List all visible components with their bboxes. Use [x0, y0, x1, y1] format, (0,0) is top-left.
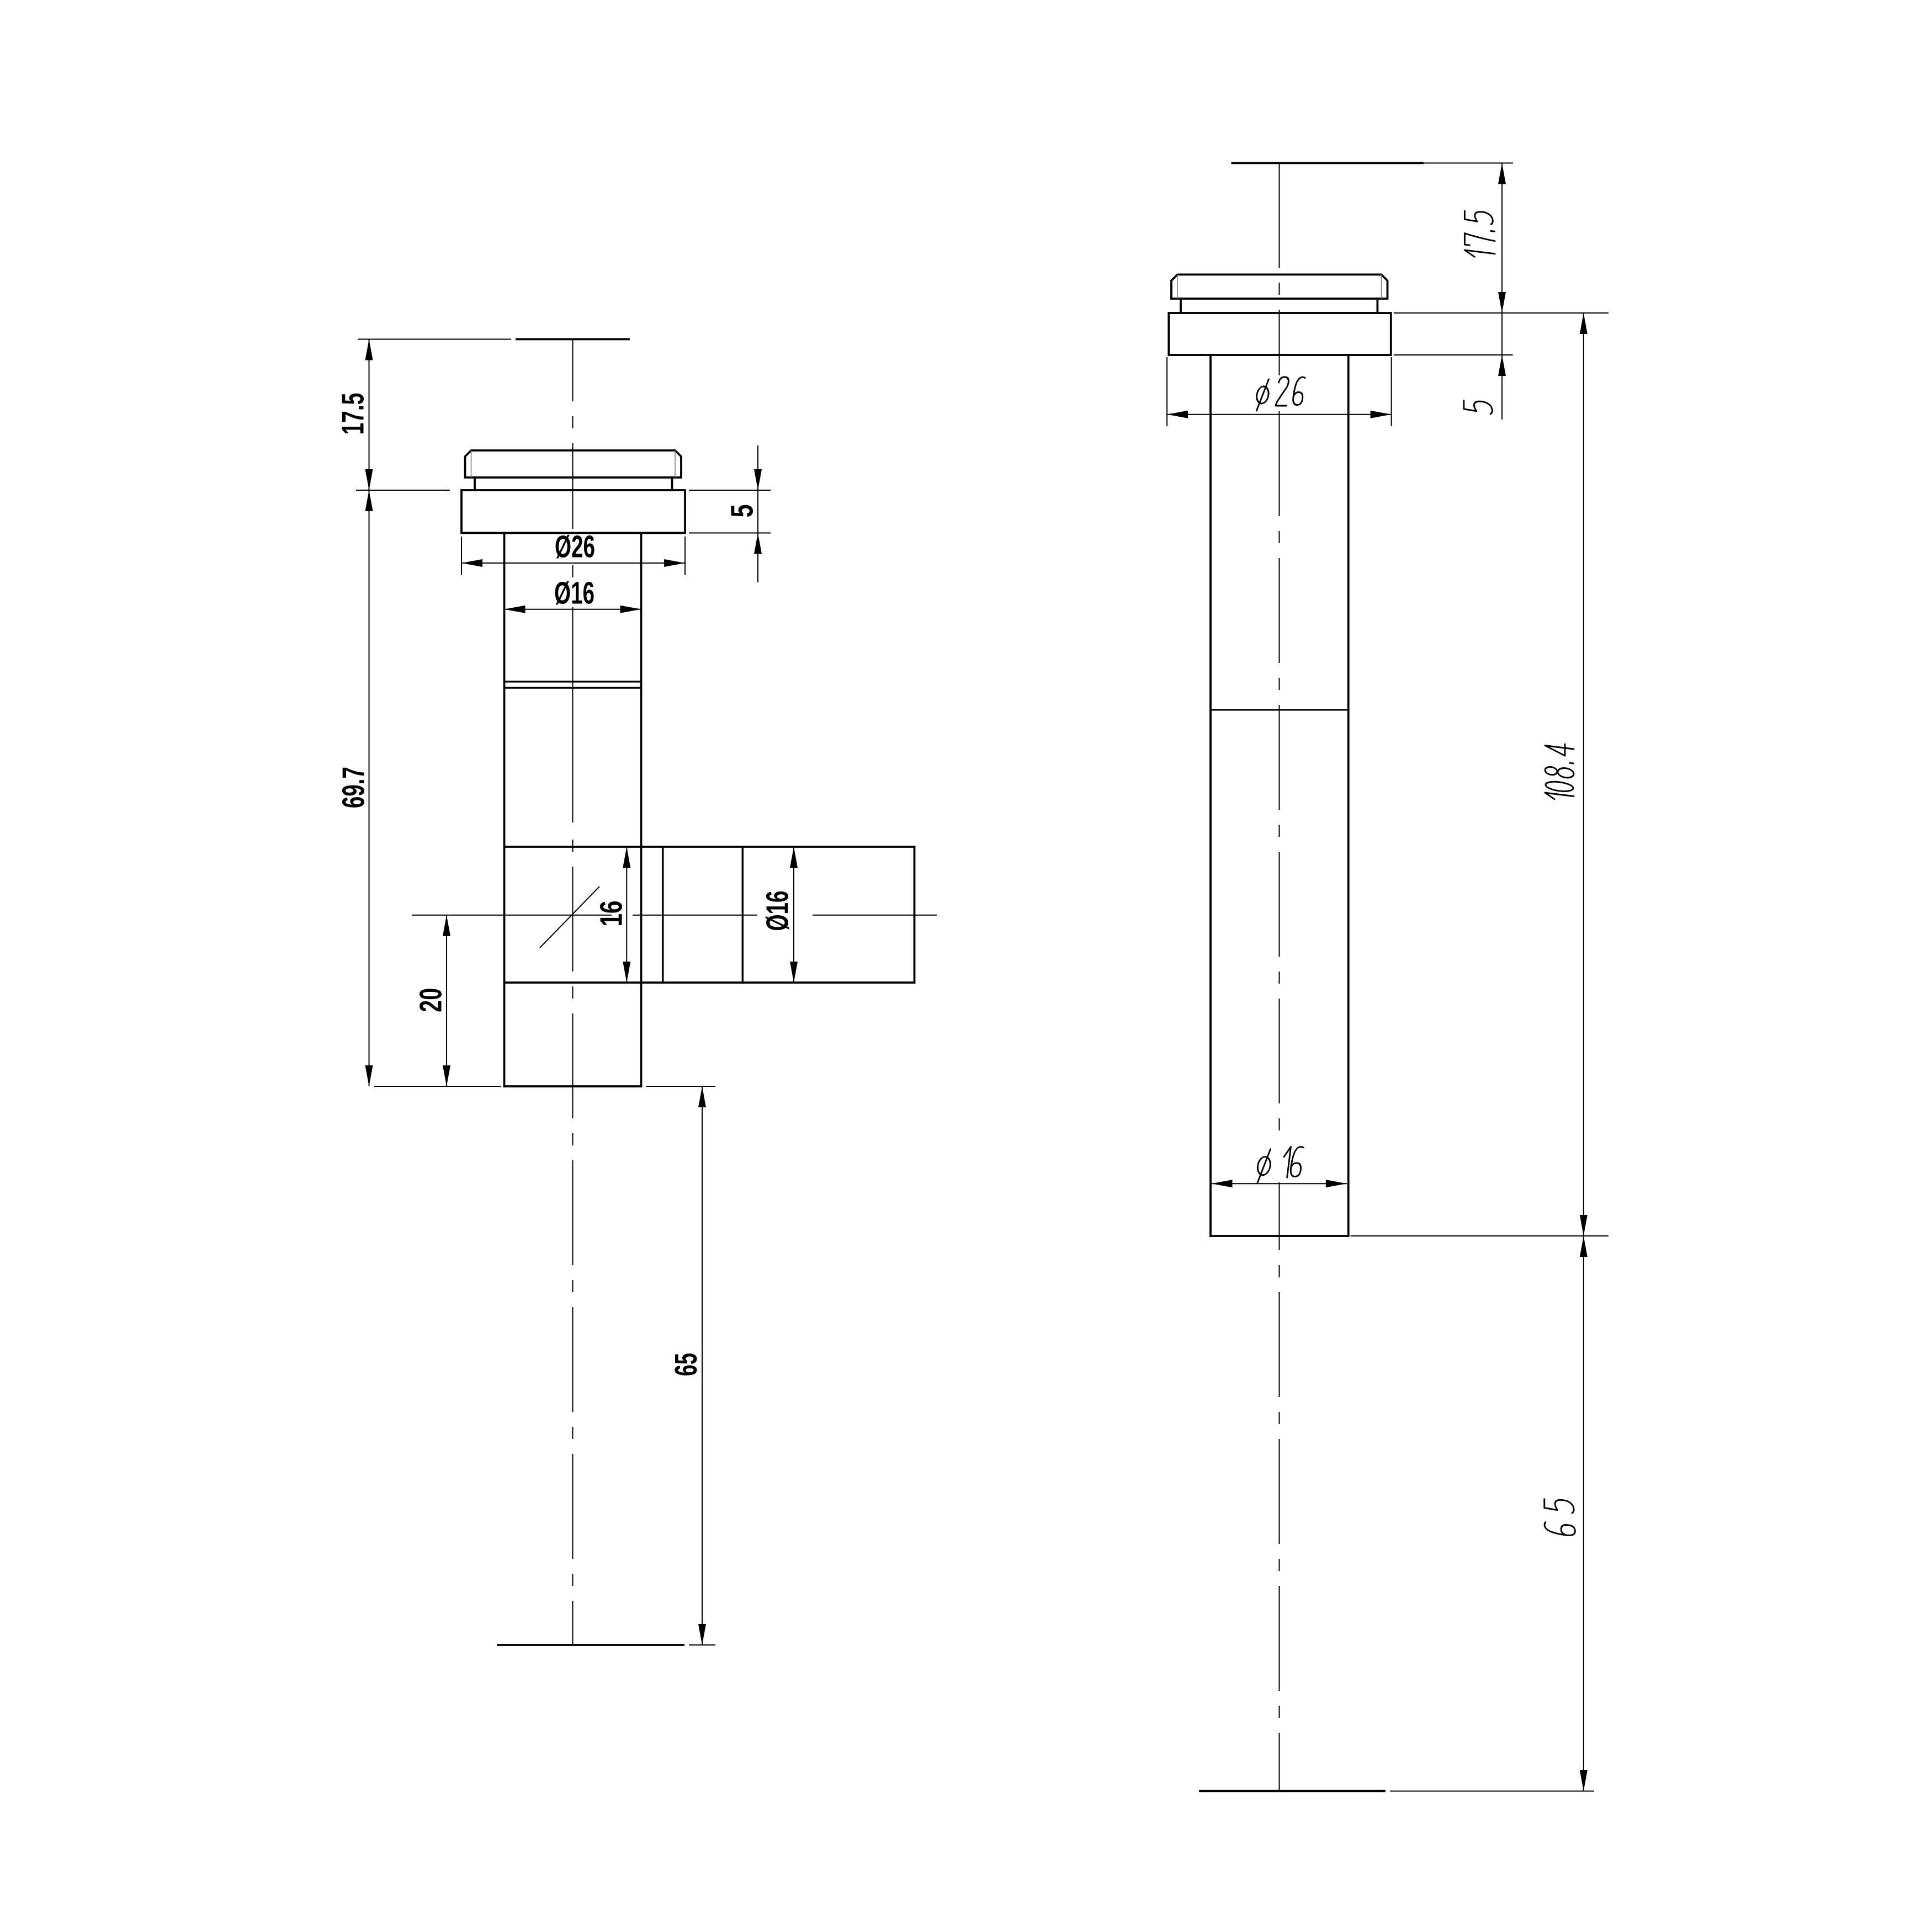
svg-text:Ø26: Ø26: [555, 529, 595, 565]
svg-text:20: 20: [413, 988, 448, 1012]
svg-text:17.5: 17.5: [336, 393, 371, 435]
svg-text:65: 65: [668, 1353, 704, 1376]
svg-text:69.7: 69.7: [336, 767, 371, 808]
svg-text:Ø16: Ø16: [760, 891, 795, 931]
svg-text:Ø16: Ø16: [554, 576, 595, 611]
svg-text:16: 16: [593, 901, 629, 927]
svg-text:5: 5: [725, 505, 760, 518]
